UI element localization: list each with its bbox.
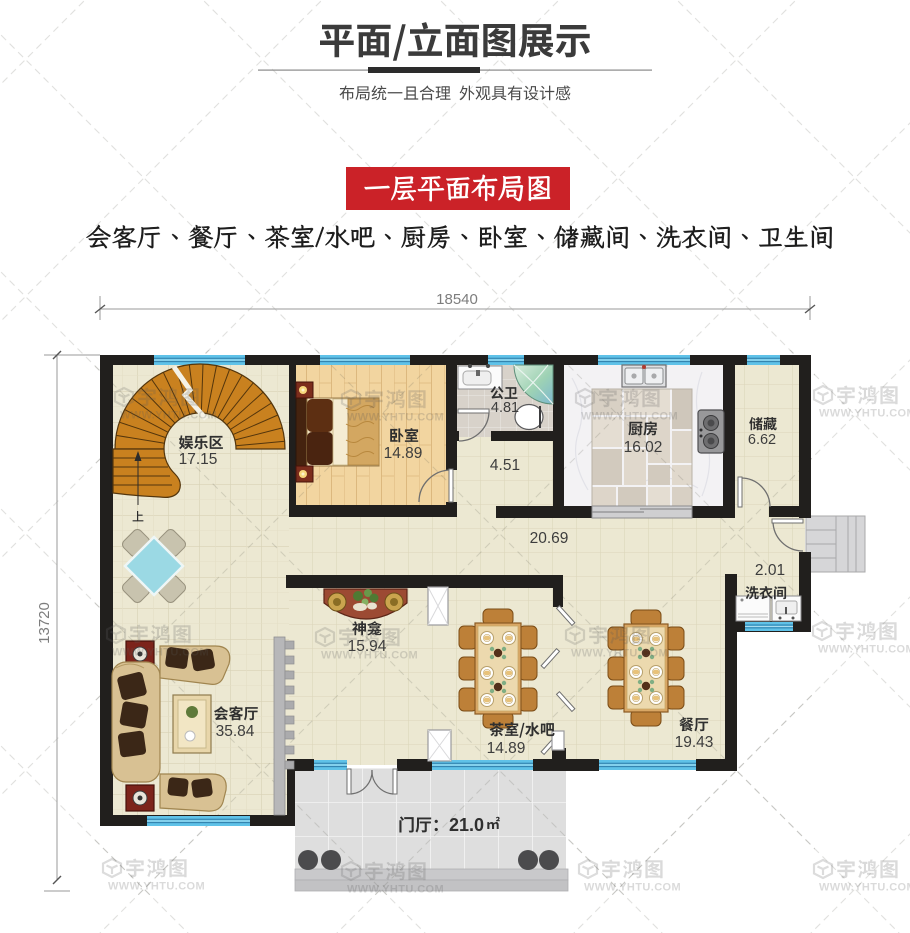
svg-text:20.69: 20.69 xyxy=(530,530,569,547)
svg-text:17.15: 17.15 xyxy=(179,451,218,468)
svg-text:13720: 13720 xyxy=(36,602,53,644)
svg-text:4.81: 4.81 xyxy=(491,400,519,416)
svg-text:19.43: 19.43 xyxy=(675,734,714,751)
svg-text:16.02: 16.02 xyxy=(624,439,663,456)
svg-text:35.84: 35.84 xyxy=(216,723,255,740)
svg-text:14.89: 14.89 xyxy=(384,445,423,462)
svg-text:14.89: 14.89 xyxy=(487,740,526,757)
svg-text:2.01: 2.01 xyxy=(755,562,785,579)
svg-text:21.0: 21.0 xyxy=(449,815,484,835)
svg-text:18540: 18540 xyxy=(436,291,478,308)
svg-text:6.62: 6.62 xyxy=(748,432,776,448)
svg-text:4.51: 4.51 xyxy=(490,457,520,474)
